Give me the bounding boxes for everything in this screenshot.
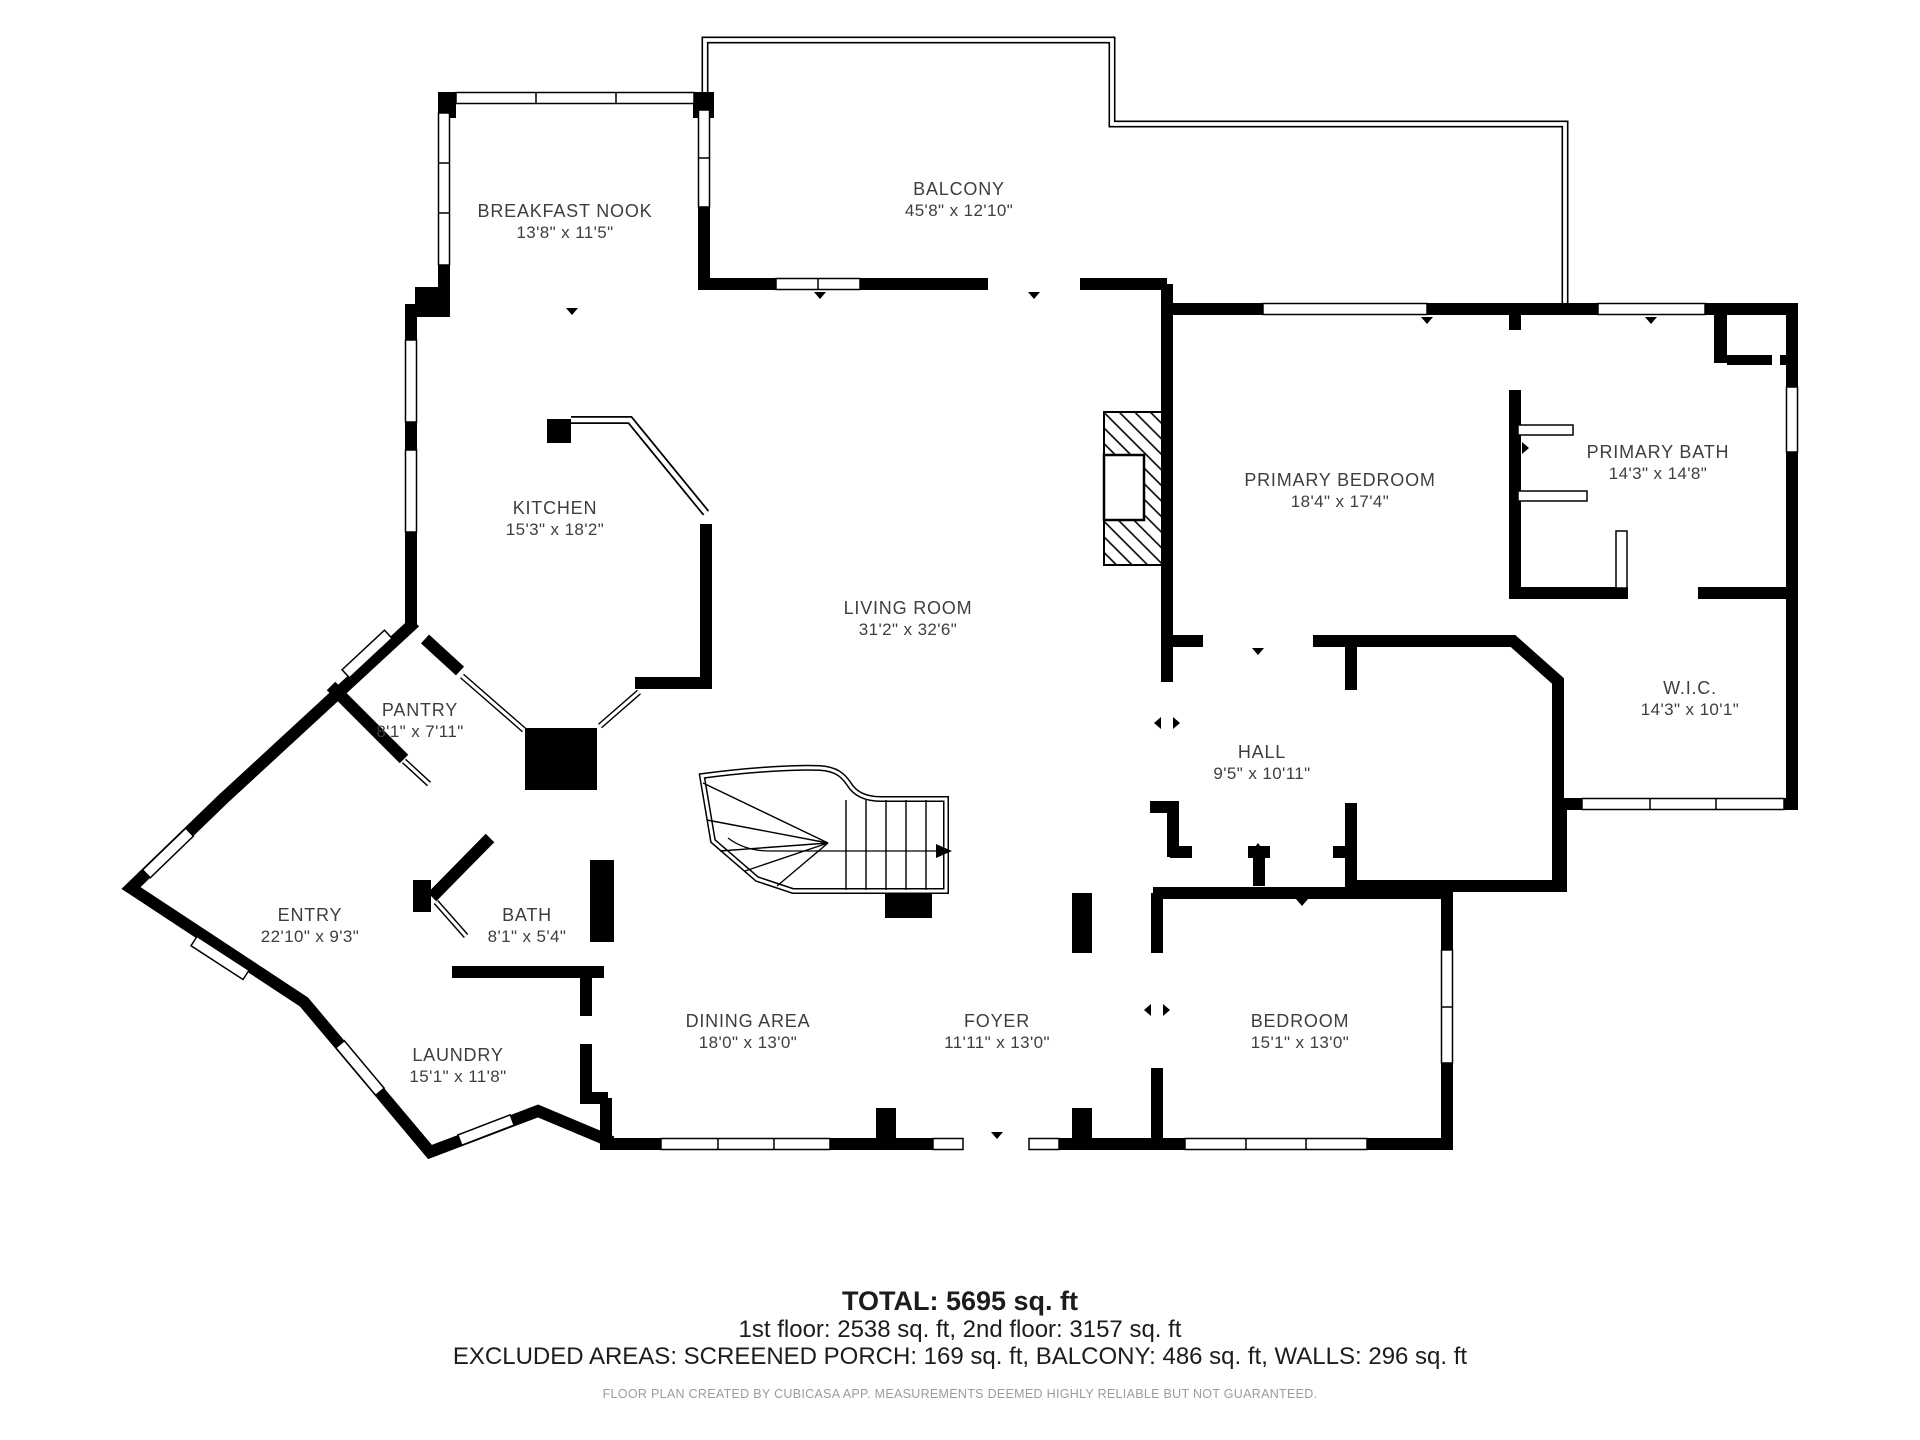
room-label-bedroom: BEDROOM [1251, 1011, 1350, 1031]
room-dims-dining-area: 18'0" x 13'0" [699, 1033, 797, 1052]
room-label-foyer: FOYER [964, 1011, 1030, 1031]
excluded-areas-text: EXCLUDED AREAS: SCREENED PORCH: 169 sq. … [0, 1343, 1920, 1370]
room-label-living-room: LIVING ROOM [844, 598, 973, 618]
disclaimer-text: FLOOR PLAN CREATED BY CUBICASA APP. MEAS… [0, 1387, 1920, 1401]
room-dims-wic: 14'3" x 10'1" [1641, 700, 1739, 719]
windows [143, 93, 1798, 1150]
room-dims-kitchen: 15'3" x 18'2" [506, 520, 604, 539]
walls [131, 92, 1798, 1152]
room-label-dining-area: DINING AREA [686, 1011, 811, 1031]
balcony-outline [705, 40, 1565, 303]
room-label-hall: HALL [1238, 742, 1286, 762]
floor-areas-text: 1st floor: 2538 sq. ft, 2nd floor: 3157 … [0, 1316, 1920, 1343]
staircase [702, 768, 952, 891]
room-label-primary-bath: PRIMARY BATH [1587, 442, 1730, 462]
room-dims-foyer: 11'11" x 13'0" [944, 1033, 1050, 1052]
room-dims-primary-bedroom: 18'4" x 17'4" [1291, 492, 1389, 511]
summary-block: TOTAL: 5695 sq. ft 1st floor: 2538 sq. f… [0, 1286, 1920, 1401]
room-label-kitchen: KITCHEN [513, 498, 598, 518]
fireplace [1104, 412, 1164, 565]
room-label-laundry: LAUNDRY [412, 1045, 503, 1065]
total-area-text: TOTAL: 5695 sq. ft [0, 1286, 1920, 1316]
room-dims-breakfast-nook: 13'8" x 11'5" [516, 223, 613, 242]
room-label-bath: BATH [502, 905, 552, 925]
room-label-balcony: BALCONY [913, 179, 1005, 199]
wall-blocks [413, 92, 1794, 1146]
floor-plan: BREAKFAST NOOK 13'8" x 11'5" BALCONY 45'… [0, 0, 1920, 1440]
room-dims-bath: 8'1" x 5'4" [488, 927, 567, 946]
room-dims-living-room: 31'2" x 32'6" [859, 620, 957, 639]
room-label-wic: W.I.C. [1663, 678, 1717, 698]
room-dims-balcony: 45'8" x 12'10" [905, 201, 1013, 220]
room-dims-entry: 22'10" x 9'3" [261, 927, 359, 946]
room-dims-hall: 9'5" x 10'11" [1213, 764, 1310, 783]
room-dims-pantry: 8'1" x 7'11" [376, 722, 463, 741]
room-dims-bedroom: 15'1" x 13'0" [1251, 1033, 1349, 1052]
room-label-entry: ENTRY [278, 905, 343, 925]
room-label-pantry: PANTRY [382, 700, 458, 720]
room-dims-laundry: 15'1" x 11'8" [409, 1067, 506, 1086]
room-label-breakfast-nook: BREAKFAST NOOK [478, 201, 653, 221]
floor-plan-page: BREAKFAST NOOK 13'8" x 11'5" BALCONY 45'… [0, 0, 1920, 1440]
room-dims-primary-bath: 14'3" x 14'8" [1609, 464, 1707, 483]
room-label-primary-bedroom: PRIMARY BEDROOM [1244, 470, 1435, 490]
